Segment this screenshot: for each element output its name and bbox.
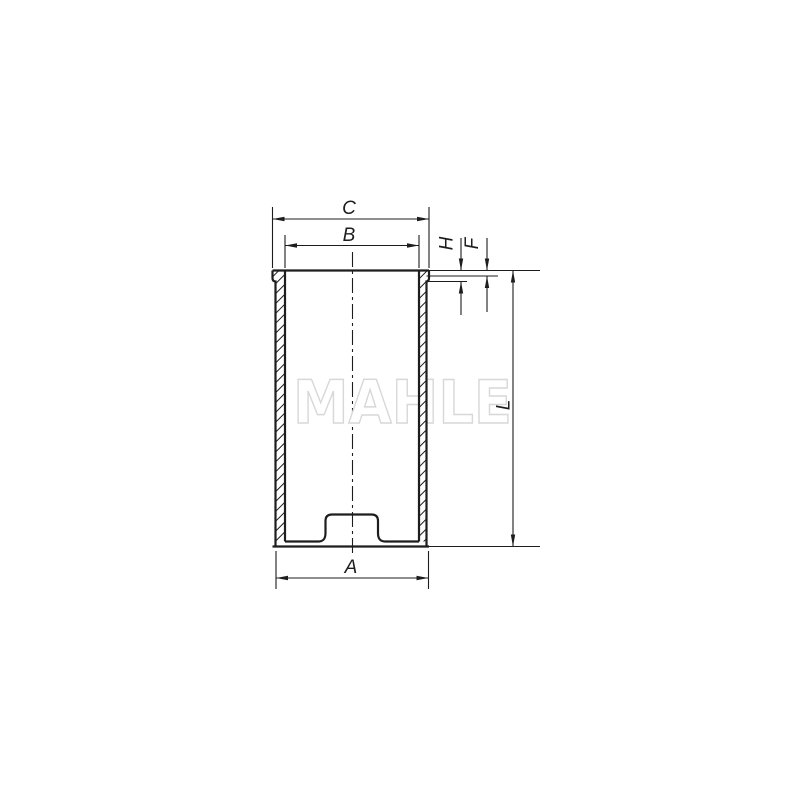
dim-label-c: C	[342, 198, 356, 219]
product-image-canvas: MAHLE	[0, 0, 800, 800]
watermark: MAHLE	[293, 368, 512, 438]
dim-label-a: A	[344, 557, 358, 578]
dim-label-h: H	[437, 236, 458, 250]
dim-label-l: L	[494, 400, 515, 411]
cylinder-liner-technical-drawing: MAHLE	[0, 0, 800, 800]
dim-label-b: B	[343, 225, 356, 246]
dim-label-f: F	[462, 236, 483, 249]
watermark-logo-text: MAHLE	[293, 368, 512, 438]
